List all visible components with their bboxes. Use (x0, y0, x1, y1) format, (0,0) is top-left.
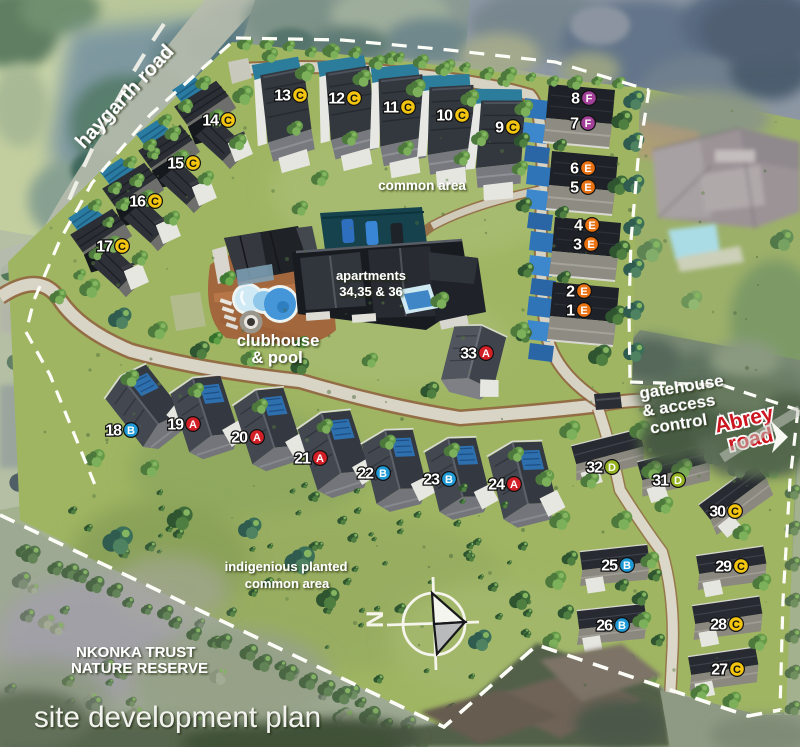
svg-text:NATURE RESERVE: NATURE RESERVE (71, 660, 208, 677)
svg-text:E: E (584, 182, 591, 194)
svg-text:B: B (623, 560, 631, 572)
svg-text:28: 28 (710, 617, 727, 634)
svg-text:27: 27 (711, 662, 728, 679)
svg-text:23: 23 (423, 472, 440, 489)
svg-text:C: C (189, 158, 197, 170)
svg-text:N: N (362, 611, 389, 628)
svg-text:C: C (458, 110, 466, 122)
svg-text:site development plan: site development plan (34, 701, 321, 734)
svg-text:C: C (737, 561, 745, 573)
svg-text:E: E (580, 305, 587, 317)
svg-text:3: 3 (573, 237, 582, 254)
svg-text:14: 14 (202, 113, 219, 130)
svg-text:E: E (587, 239, 594, 251)
svg-text:& pool: & pool (251, 349, 302, 367)
svg-text:1: 1 (566, 303, 575, 320)
svg-text:B: B (127, 425, 135, 437)
svg-text:C: C (350, 93, 358, 105)
svg-text:22: 22 (357, 466, 374, 483)
svg-text:2: 2 (566, 284, 575, 301)
svg-text:C: C (732, 619, 740, 631)
svg-text:clubhouse: clubhouse (237, 332, 320, 350)
svg-text:11: 11 (383, 100, 399, 117)
svg-text:A: A (510, 479, 518, 491)
svg-text:5: 5 (570, 180, 579, 197)
svg-text:16: 16 (129, 194, 146, 211)
svg-text:34,35 & 36: 34,35 & 36 (339, 284, 403, 299)
svg-text:8: 8 (571, 91, 580, 108)
svg-text:33: 33 (460, 346, 477, 363)
svg-text:F: F (586, 93, 593, 105)
svg-text:A: A (316, 453, 324, 465)
svg-text:32: 32 (586, 460, 603, 477)
svg-text:13: 13 (274, 88, 291, 105)
svg-text:20: 20 (231, 430, 248, 447)
svg-text:25: 25 (601, 558, 618, 575)
svg-text:C: C (151, 196, 159, 208)
svg-text:7: 7 (570, 116, 579, 133)
svg-text:18: 18 (105, 423, 122, 440)
svg-text:D: D (674, 475, 682, 487)
svg-text:common area: common area (378, 178, 466, 193)
svg-text:9: 9 (495, 120, 504, 137)
svg-text:B: B (445, 474, 453, 486)
svg-text:17: 17 (96, 239, 113, 256)
svg-text:indigenious planted: indigenious planted (225, 559, 348, 574)
svg-text:10: 10 (436, 108, 453, 125)
svg-text:A: A (482, 348, 490, 360)
svg-text:A: A (189, 419, 197, 431)
svg-text:E: E (588, 220, 595, 232)
svg-text:30: 30 (709, 504, 726, 521)
svg-text:26: 26 (596, 618, 613, 635)
svg-text:F: F (585, 118, 592, 130)
svg-text:6: 6 (570, 161, 579, 178)
svg-text:D: D (608, 462, 616, 474)
svg-text:19: 19 (167, 417, 184, 434)
svg-text:C: C (118, 241, 126, 253)
svg-text:E: E (580, 286, 587, 298)
svg-text:C: C (733, 664, 741, 676)
svg-text:A: A (253, 432, 261, 444)
svg-text:29: 29 (715, 559, 732, 576)
svg-text:E: E (584, 163, 591, 175)
svg-text:B: B (618, 620, 626, 632)
svg-text:NKONKA TRUST: NKONKA TRUST (76, 644, 195, 661)
svg-text:C: C (296, 90, 304, 102)
svg-text:C: C (404, 102, 412, 114)
svg-text:21: 21 (294, 451, 311, 468)
svg-text:24: 24 (488, 477, 505, 494)
svg-text:apartments: apartments (336, 268, 406, 283)
svg-text:4: 4 (574, 218, 583, 235)
svg-text:12: 12 (328, 91, 345, 108)
svg-text:15: 15 (167, 156, 184, 173)
svg-text:C: C (509, 122, 517, 134)
svg-text:B: B (379, 468, 387, 480)
svg-text:31: 31 (652, 473, 669, 490)
svg-text:C: C (224, 115, 232, 127)
svg-text:C: C (731, 506, 739, 518)
svg-text:common area: common area (245, 576, 330, 591)
